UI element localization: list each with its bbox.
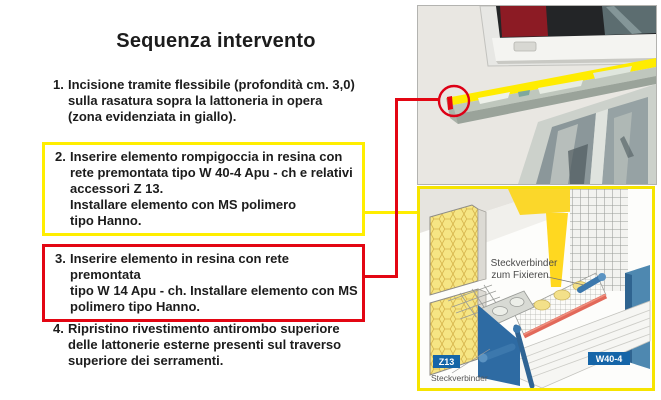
step-3-text: Inserire elemento in resina con rete pre… [70, 251, 358, 315]
callout-label-line1: Steckverbinder [491, 258, 558, 269]
connector-red-to-photo-circle [395, 98, 440, 101]
incision-mark [447, 96, 453, 110]
step-4-text: Ripristino rivestimento antirombo superi… [68, 321, 341, 369]
page-title: Sequenza intervento [0, 30, 432, 53]
profile-diagram: Steckverbinder zum Fixieren Z13 Steckver… [417, 186, 655, 391]
callout-label-line2: zum Fixieren [491, 270, 548, 281]
step-3-number: 3. [55, 251, 70, 315]
step-4: 4. Ripristino rivestimento antirombo sup… [53, 321, 383, 369]
window-photo [417, 5, 657, 185]
w404-badge: W40-4 [588, 352, 630, 365]
svg-text:W40-4: W40-4 [596, 354, 623, 364]
step-1: 1. Incisione tramite flessibile (profond… [53, 77, 383, 125]
step-1-text: Incisione tramite flessibile (profondità… [68, 77, 355, 125]
connector-yellow-step2-to-diagram [365, 211, 417, 214]
z13-sublabel: Steckverbinder [431, 373, 488, 383]
window-photo-illustration [418, 6, 656, 184]
step-1-number: 1. [53, 77, 68, 125]
svg-text:Z13: Z13 [439, 357, 455, 367]
upper-window [480, 6, 656, 66]
step-2-highlight-box: 2. Inserire elemento rompigoccia in resi… [42, 142, 365, 236]
connector-red-vertical [395, 98, 398, 278]
z13-badge: Z13 [433, 355, 460, 368]
slide: Sequenza intervento 1. Incisione tramite… [0, 0, 661, 400]
step-2-text: Inserire elemento rompigoccia in resina … [70, 149, 353, 229]
profile-diagram-illustration: Steckverbinder zum Fixieren Z13 Steckver… [420, 189, 652, 388]
step-4-number: 4. [53, 321, 68, 369]
connector-red-from-step3 [365, 275, 398, 278]
step-2-number: 2. [55, 149, 70, 229]
window-hinge [514, 42, 536, 51]
step-3-highlight-box: 3. Inserire elemento in resina con rete … [42, 244, 365, 322]
